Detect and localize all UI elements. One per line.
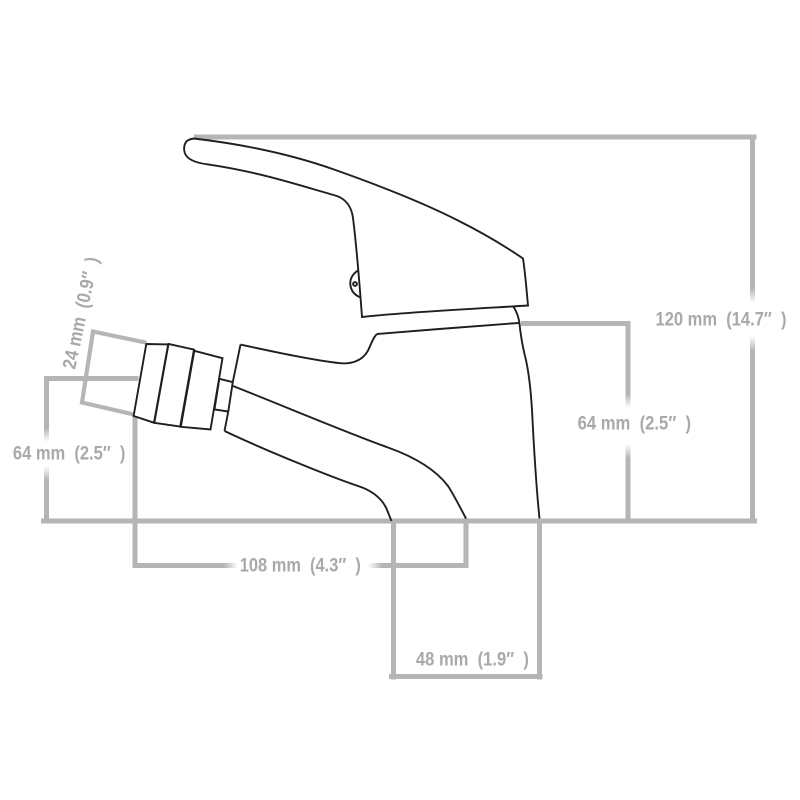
svg-text:48 mm (1.9″ ): 48 mm (1.9″ )	[416, 650, 529, 671]
svg-text:64 mm (2.5″ ): 64 mm (2.5″ )	[13, 444, 126, 465]
svg-text:120 mm (14.7″ ): 120 mm (14.7″ )	[656, 310, 787, 331]
svg-text:64 mm (2.5″ ): 64 mm (2.5″ )	[578, 413, 692, 434]
svg-text:108 mm (4.3″ ): 108 mm (4.3″ )	[240, 556, 361, 577]
svg-text:24 mm (0.9″ ): 24 mm (0.9″ )	[59, 255, 103, 371]
